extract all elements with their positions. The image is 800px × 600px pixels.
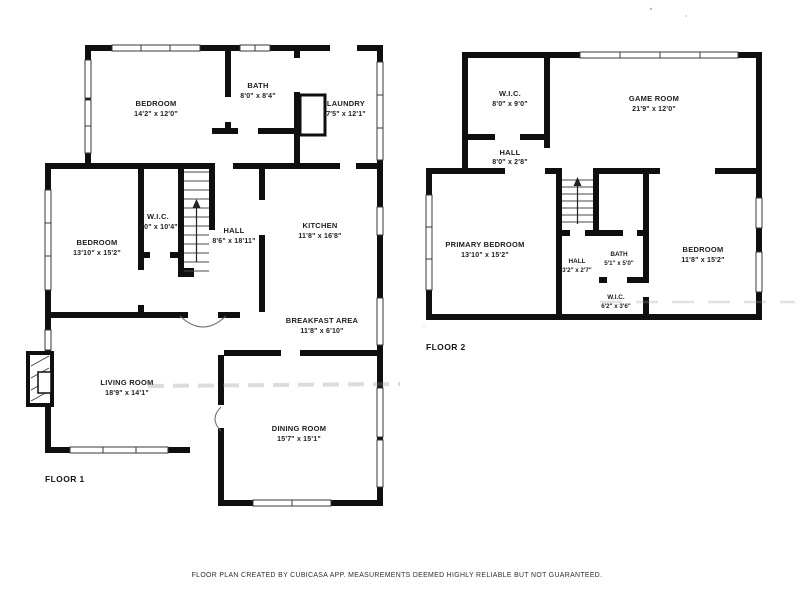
- room-name: W.I.C.: [147, 212, 169, 221]
- room-name: W.I.C.: [499, 89, 521, 98]
- floor2-label: FLOOR 2: [426, 342, 466, 352]
- room-name: BEDROOM: [136, 99, 177, 108]
- room-dims: 13'10" x 15'2": [73, 250, 121, 257]
- room-dims: 11'8" x 16'8": [298, 233, 341, 240]
- floor1-label: FLOOR 1: [45, 474, 85, 484]
- stairs-floor2: [562, 177, 593, 224]
- room-name: BATH: [610, 251, 628, 258]
- disclaimer-text: FLOOR PLAN CREATED BY CUBICASA APP. MEAS…: [192, 572, 603, 579]
- room-name: LIVING ROOM: [100, 378, 153, 387]
- room-dims: 21'9" x 12'0": [632, 106, 676, 113]
- room-name: LAUNDRY: [327, 99, 365, 108]
- room-name: HALL: [224, 226, 245, 235]
- floor2-walls: [426, 52, 762, 320]
- stairs-floor1: [184, 172, 209, 271]
- room-dims: 11'8" x 15'2": [681, 257, 724, 264]
- scan-artifacts: [148, 8, 795, 386]
- room-name: BEDROOM: [683, 245, 724, 254]
- room-dims: 3'2" x 2'7": [562, 267, 592, 274]
- room-dims: 18'9" x 14'1": [105, 390, 149, 397]
- room-name: DINING ROOM: [272, 424, 326, 433]
- room-dims: 7'5" x 12'1": [326, 111, 366, 118]
- room-name: BATH: [247, 81, 268, 90]
- room-name: W.I.C.: [607, 294, 625, 301]
- room-name: HALL: [568, 258, 585, 265]
- room-dims: 8'0" x 9'0": [492, 101, 528, 108]
- floor2-plan: W.I.C. 8'0" x 9'0" GAME ROOM 21'9" x 12'…: [426, 52, 762, 352]
- room-dims: 6'2" x 3'6": [601, 303, 631, 310]
- floor2-room-labels: W.I.C. 8'0" x 9'0" GAME ROOM 21'9" x 12'…: [445, 89, 724, 310]
- room-name: BEDROOM: [77, 238, 118, 247]
- floor1-plan: BEDROOM 14'2" x 12'0" BATH 8'0" x 8'4" L…: [28, 45, 383, 506]
- room-dims: 8'0" x 8'4": [240, 93, 276, 100]
- room-dims: 5'1" x 5'0": [604, 260, 634, 267]
- fireplace: [28, 353, 52, 405]
- room-name: KITCHEN: [302, 221, 337, 230]
- room-dims: 15'7" x 15'1": [277, 436, 321, 443]
- floor-plan-page: BEDROOM 14'2" x 12'0" BATH 8'0" x 8'4" L…: [0, 0, 800, 600]
- room-dims: 8'6" x 18'11": [212, 238, 255, 245]
- floor-plan-canvas: BEDROOM 14'2" x 12'0" BATH 8'0" x 8'4" L…: [0, 0, 800, 600]
- room-name: HALL: [500, 148, 521, 157]
- room-name: PRIMARY BEDROOM: [445, 240, 524, 249]
- door-arc-living-dining: [215, 407, 221, 431]
- room-dims: 4'0" x 10'4": [138, 224, 178, 231]
- room-name: BREAKFAST AREA: [286, 316, 359, 325]
- room-dims: 11'8" x 6'10": [300, 328, 343, 335]
- floor1-closet: [300, 95, 325, 135]
- room-dims: 8'0" x 2'8": [492, 159, 528, 166]
- room-dims: 14'2" x 12'0": [134, 111, 178, 118]
- room-dims: 13'10" x 15'2": [461, 252, 509, 259]
- room-name: GAME ROOM: [629, 94, 679, 103]
